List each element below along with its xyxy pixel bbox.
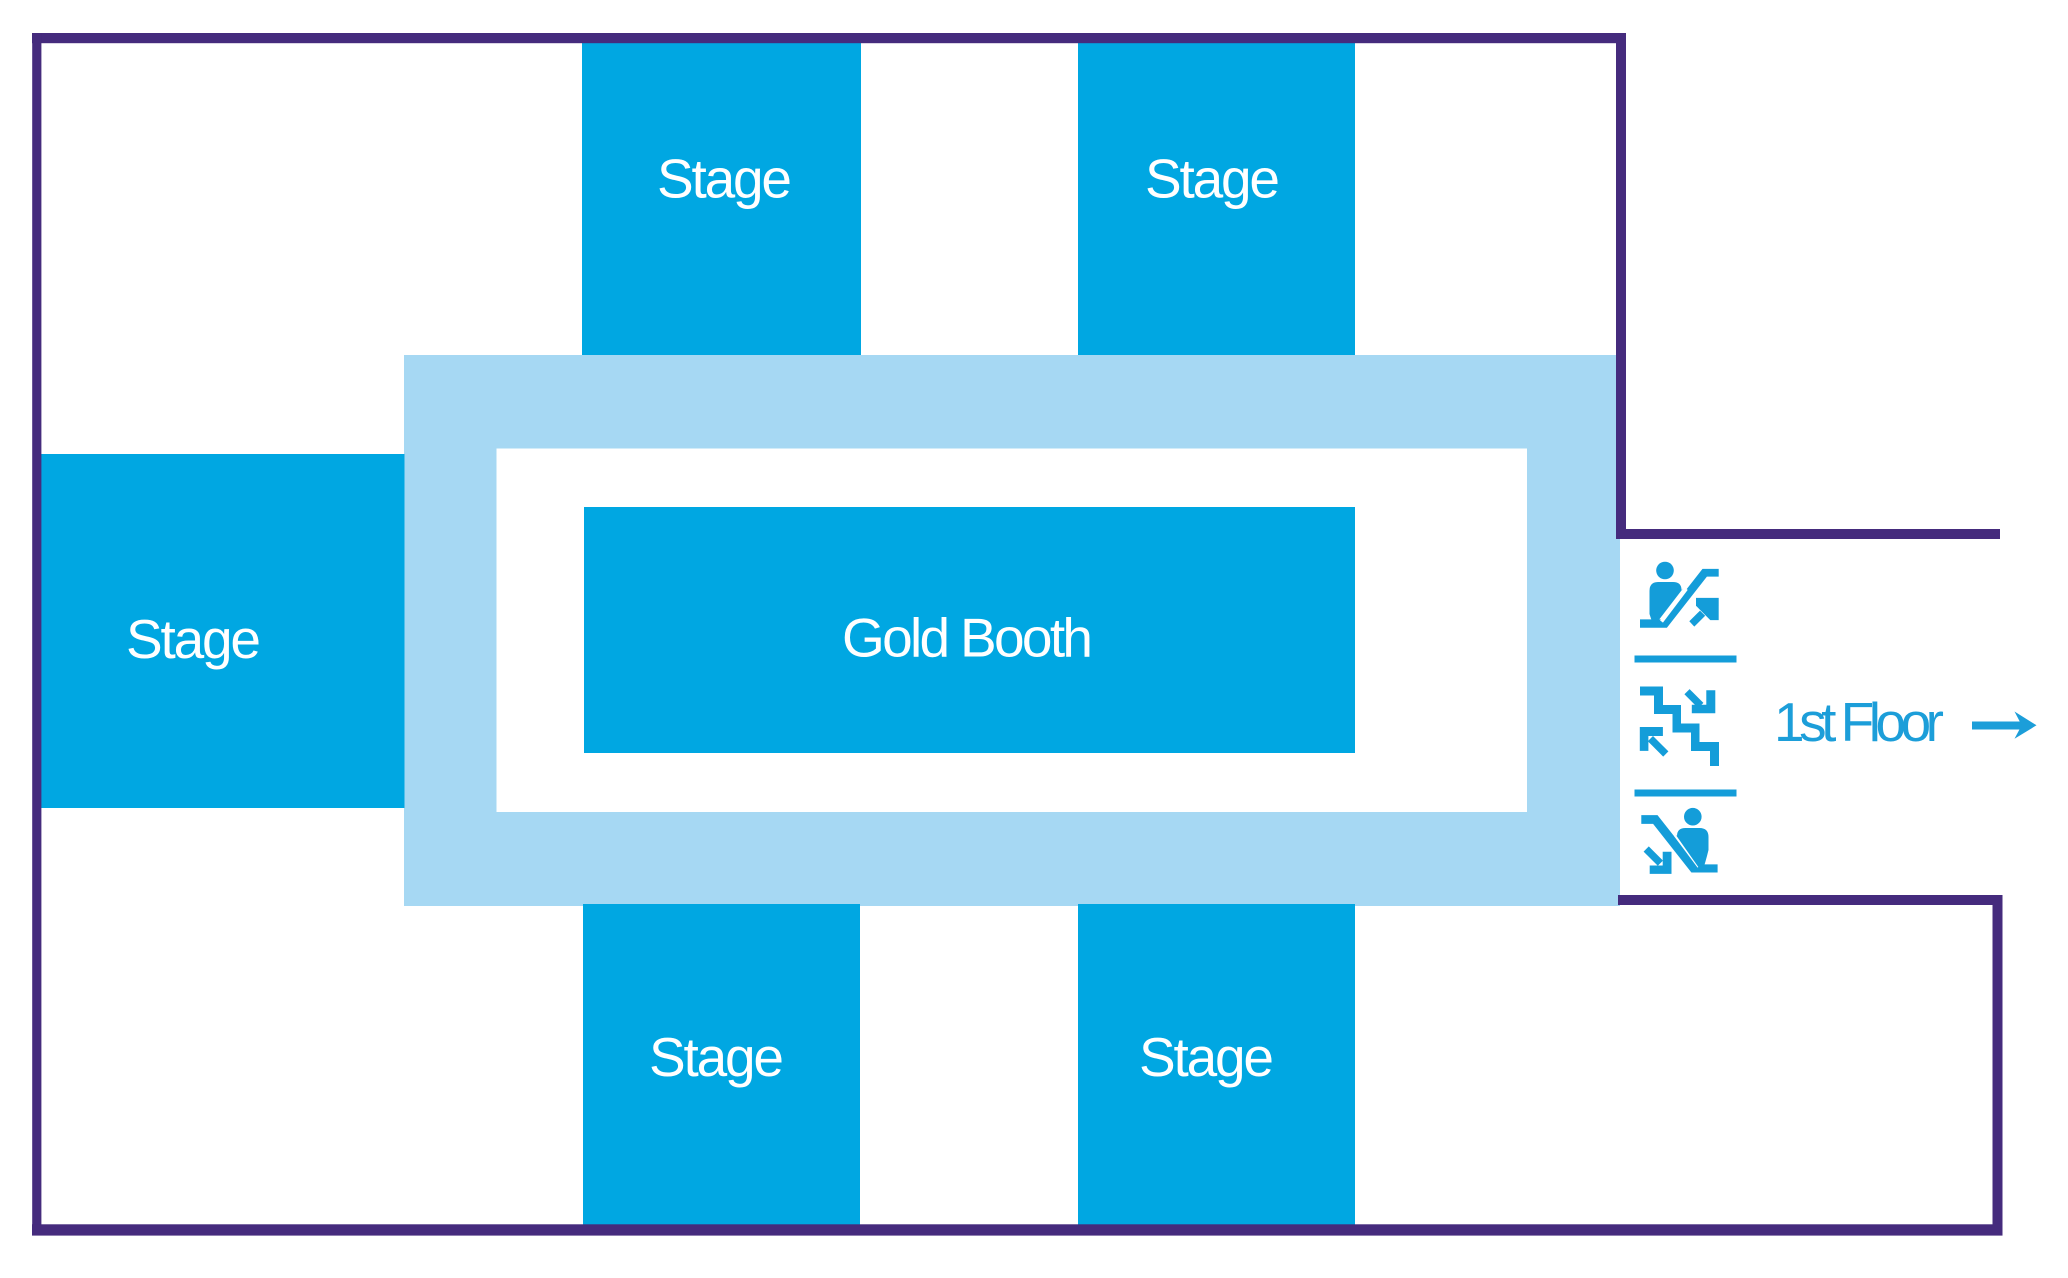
svg-text:Stage: Stage <box>1139 1026 1274 1088</box>
svg-text:Stage: Stage <box>657 148 792 210</box>
svg-text:Stage: Stage <box>1145 148 1280 210</box>
svg-text:Stage: Stage <box>126 608 261 670</box>
svg-text:Gold Booth: Gold Booth <box>842 607 1093 669</box>
svg-text:Stage: Stage <box>649 1026 784 1088</box>
svg-text:1st Floor: 1st Floor <box>1774 691 1944 753</box>
